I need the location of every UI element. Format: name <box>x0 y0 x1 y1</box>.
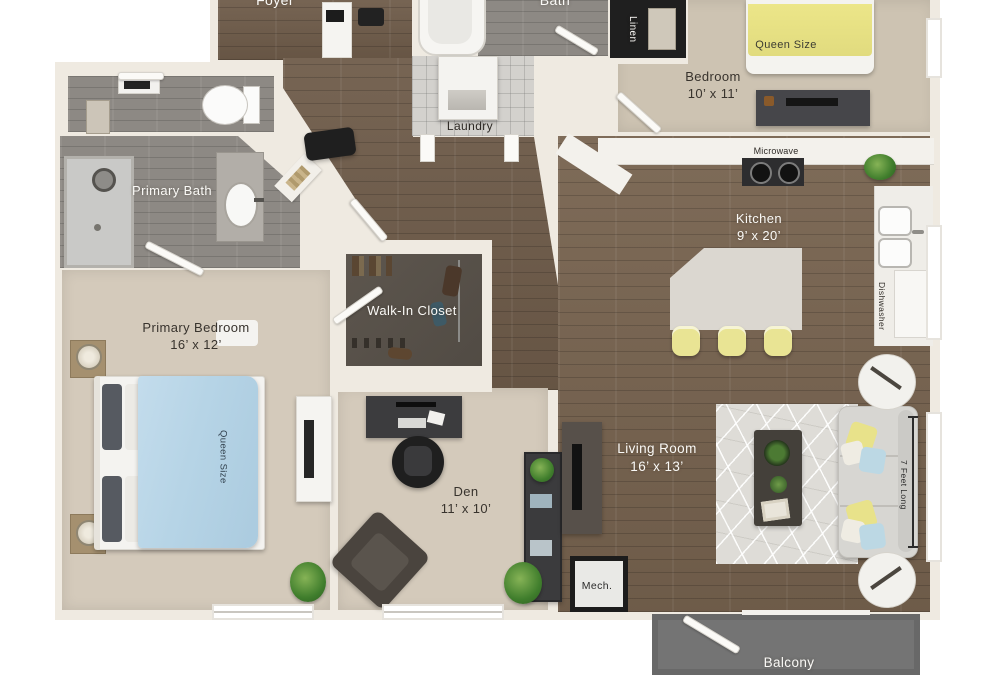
shelf-items <box>124 81 150 89</box>
sink-faucet <box>912 230 924 234</box>
window-bedroom-right <box>926 18 942 78</box>
sofa-pillow-blue-2 <box>859 523 887 551</box>
closet-clothes-top <box>352 256 392 276</box>
hamper <box>86 100 110 134</box>
dishwasher-label: Dishwasher <box>876 272 887 340</box>
bookshelf-books-1 <box>530 494 552 508</box>
vanity-faucet <box>254 198 264 202</box>
vanity-sink <box>224 182 258 228</box>
primary-bedroom-label: Primary Bedroom16’ x 12’ <box>96 319 296 353</box>
primary-tv <box>304 420 314 478</box>
primary-bed-comforter <box>138 376 258 548</box>
primary-bed-size-label: Queen Size <box>216 428 229 486</box>
mech-label: Mech. <box>566 580 628 594</box>
shower-head <box>92 168 116 192</box>
bath-label: Bath <box>520 0 590 9</box>
bathtub-basin <box>428 0 472 44</box>
sofa-pillow-blue-1 <box>858 446 887 475</box>
sofa-length-label: 7 Feet Long <box>898 452 909 518</box>
foyer-label: Foyer <box>240 0 310 9</box>
closet-item <box>387 347 412 360</box>
toilet-bowl <box>202 85 248 125</box>
linen-label: Linen <box>626 6 639 52</box>
foyer-item <box>358 8 384 26</box>
floor-plan: Foyer Bath Linen Bedroom10’ x 11’ Queen … <box>0 0 1000 675</box>
primary-bedroom-plant <box>290 562 326 602</box>
primary-bath-label: Primary Bath <box>122 182 222 199</box>
living-tv <box>572 444 582 510</box>
kitchen-plant <box>864 154 896 180</box>
walk-in-closet-label: Walk-In Closet <box>357 302 467 319</box>
desk-monitor <box>396 402 436 407</box>
measure-tick-bottom <box>908 546 918 548</box>
shower-drain <box>94 224 101 231</box>
measure-tick-top <box>908 416 918 418</box>
bookshelf-books-2 <box>530 540 552 556</box>
sink-basin-top <box>878 206 912 236</box>
primary-tv-console <box>296 396 332 502</box>
window-primary-bedroom <box>212 604 314 620</box>
office-chair-seat <box>404 446 432 476</box>
dresser-tv <box>786 98 838 106</box>
pillow-dark-bottom <box>102 476 122 542</box>
bookshelf-plant <box>530 458 554 482</box>
coffee-table-book <box>761 498 791 522</box>
linen-basket <box>648 8 676 50</box>
balcony-label: Balcony <box>729 654 849 672</box>
coffee-table-plant-small <box>770 476 787 493</box>
pillow-dark-top <box>102 384 122 450</box>
stove-burner-right <box>778 162 800 184</box>
laundry-jamb-right <box>504 134 519 162</box>
side-table-top <box>858 354 916 410</box>
laundry-jamb-left <box>420 134 435 162</box>
closet-shoes-row <box>352 338 412 348</box>
desk-keyboard <box>398 418 426 428</box>
laundry-label: Laundry <box>420 119 520 135</box>
window-kitchen-right <box>926 225 942 340</box>
balcony-railing <box>742 610 870 615</box>
washer-dryer <box>438 56 498 120</box>
island-stool-3 <box>764 326 792 356</box>
washer-door <box>448 90 486 110</box>
window-living-right <box>926 412 942 562</box>
sink-basin-bottom <box>878 238 912 268</box>
window-den <box>382 604 504 620</box>
living-tv-console <box>562 422 602 534</box>
den-plant <box>504 562 542 604</box>
living-room-label: Living Room16’ x 13’ <box>597 440 717 476</box>
island-stool-1 <box>672 326 700 356</box>
island-stool-2 <box>718 326 746 356</box>
kitchen-label: Kitchen9’ x 20’ <box>709 210 809 244</box>
side-table-bottom <box>858 552 916 608</box>
microwave-label: Microwave <box>736 146 816 158</box>
toilet-room-door <box>118 72 164 80</box>
den-label: Den11’ x 10’ <box>416 483 516 517</box>
bedroom-bed-size-label: Queen Size <box>736 38 836 53</box>
foyer-decor <box>326 10 344 22</box>
bedroom-label: Bedroom10’ x 11’ <box>653 68 773 102</box>
stove-burner-left <box>750 162 772 184</box>
coffee-table-plant-bowl <box>764 440 790 466</box>
sofa-measure-line <box>912 416 914 548</box>
